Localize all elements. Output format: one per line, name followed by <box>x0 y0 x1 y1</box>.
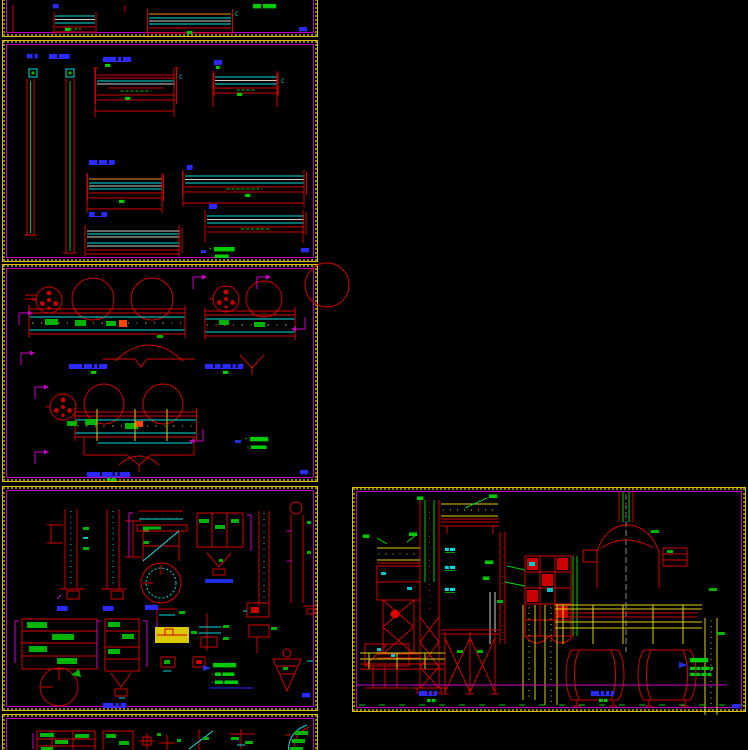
beam-mid-right <box>183 170 307 207</box>
equipment-label: ▆▆▆▆ <box>485 560 493 564</box>
tee-detail <box>229 729 255 749</box>
sheet-inner-frame: ▆▆▆▆▆ ▆▆▆ ▆ ▆▆▆ ▆▆▆ ▆▆▆ ▆▆ ▆▆▆ ▆ ▆▆ ▆▆▆ … <box>6 268 314 478</box>
equipment-label: ▆▆▆ <box>417 496 423 500</box>
detail-label: ▆▆▆▆ ▆ ▆▆ <box>103 703 126 708</box>
notes-line: ▆▆▆ ▆▆ ▆▆▆ ▆▆ <box>690 673 711 677</box>
sheet-elevation: ▆▆▆▆ ▆▆▆ ▆▆▆ ▆▆▆▆ ▆▆ ▆▆▆ ▆▆ ▆▆▆ ▆▆ ▆▆▆ ▆… <box>352 487 746 712</box>
notes-line: ▸ ▆▆▆▆▆▆▆▆ <box>247 445 266 449</box>
detail-title: ▆▆ - ▆▆ <box>89 212 107 217</box>
sheet-top-strip: ▆▆ ▆▆▆ ▆▆▆ C ▆▆▆ ▆▆▆▆▆ ▆▆▆ <box>2 0 318 37</box>
sheet2-drawing <box>7 45 317 261</box>
notes-line: ▸ ▆▆▆▆▆▆▆ <box>211 254 228 258</box>
notes-line: ▆▆▆▆▆▆▆▆▆ <box>213 663 236 668</box>
left-structure <box>377 536 420 658</box>
frame-detail-1 <box>33 731 95 750</box>
plan-bottom <box>46 384 197 472</box>
notes-line: ▸ ▆▆▆ ▆▆▆▆▆▆ <box>211 672 234 676</box>
note-lead-mark <box>201 250 206 253</box>
cross-details <box>139 733 181 750</box>
level-mark: ▆▆ ▆▆▆ <box>445 588 455 593</box>
plan-title: ▆▆▆ ▆▆ ▆▆▆ ▆ ▆▆ <box>205 364 243 369</box>
column-details <box>24 69 77 253</box>
vertical-details <box>259 502 311 606</box>
curved-profile-detail <box>285 725 309 750</box>
sheet-misc-details: ▆▆▆▆ ▆▆▆▆ ▆▆▆▆▆ ▆▆▆▆ ▆ ▆▆ ▆▆▆▆▆▆▆▆▆ ▸ ▆▆… <box>2 486 318 711</box>
section-arrows-top <box>19 275 305 366</box>
view-scale: ▆▆ ▆▆ <box>599 699 607 703</box>
plan-scale: ▆▆▆ <box>223 371 228 375</box>
sheet-number: ▆▆▆ <box>732 704 740 709</box>
detail-scale: ▆▆▆ <box>105 64 110 68</box>
beam-bottom-right <box>205 210 306 243</box>
dim-text: ▆▆▆ <box>187 31 192 35</box>
detail-title: ▆▆▆ ▆▆▆-▆▆ <box>89 160 114 165</box>
notes-line: ▸ ▆▆▆▆▆▆▆▆ <box>209 247 234 252</box>
detail-title: ▆▆▆▆▆ ▆ ▆▆▆ <box>103 57 131 62</box>
section-mark-c: C <box>281 79 284 85</box>
detail-label: ▆▆▆▆ <box>103 606 113 611</box>
sheet-inner-frame: ▆▆▆ ▆▆▆ ▆▆▆ <box>6 718 314 750</box>
equipment-label: ▆▆▆ <box>483 576 489 580</box>
platform-frame-bottom-left <box>15 619 97 706</box>
notes-text: ▆▆▆ ▆▆▆▆▆ <box>253 4 276 9</box>
notes-line: ▸ ▆▆▆▆▆▆▆ <box>245 437 268 442</box>
plan-top-right <box>205 263 349 375</box>
plan-scale: ▆▆▆ <box>91 371 96 375</box>
sheet4-drawing <box>7 491 317 710</box>
section-arrows-bottom <box>35 385 203 465</box>
plan-title: ▆▆▆▆▆ ▆▆▆ ▆ ▆▆▆ <box>69 364 107 369</box>
brace-detail <box>189 729 215 750</box>
sheet-number: ▆▆▆ <box>299 27 307 32</box>
sheet-tank-plans: ▆▆▆▆▆ ▆▆▆ ▆ ▆▆▆ ▆▆▆ ▆▆▆ ▆▆ ▆▆▆ ▆ ▆▆ ▆▆▆ … <box>2 264 318 482</box>
detail-title: ▆▆▆ <box>209 204 217 209</box>
notes-line: ▆▆▆▆▆▆▆ <box>690 658 708 663</box>
note-lead-mark <box>235 440 241 443</box>
sheet-inner-frame: ▆▆▆▆ ▆▆▆▆ ▆▆▆▆▆ ▆▆▆▆ ▆ ▆▆ ▆▆▆▆▆▆▆▆▆ ▸ ▆▆… <box>6 490 314 707</box>
ground-lines <box>357 588 743 705</box>
notes-line: ▆▆▆ ▆▆ ▆▆▆▆▆ ▆ <box>690 667 713 671</box>
sheet-inner-frame: ▆▆ ▆▆▆ ▆▆▆ C ▆▆▆ ▆▆▆▆▆ ▆▆▆ <box>6 0 314 33</box>
detail-label: ▆▆ <box>53 4 58 9</box>
plan-scale: ▆▆ ▆▆ <box>107 478 115 482</box>
part-label: ▆▆▆ ▆▆▆▆ <box>49 54 69 59</box>
mid-columns <box>490 532 505 644</box>
view-title: ▆▆▆ ▆ ▆ <box>419 691 437 696</box>
dim-text: ▆▆▆ <box>237 93 242 97</box>
detail-scale: ▆▆ <box>216 66 219 70</box>
long-deck-platforms <box>360 605 702 669</box>
sheet-number: ▆▆▆ <box>300 470 308 475</box>
part-label: ▆▆ ▆ <box>27 54 37 59</box>
sheet5-drawing <box>357 492 745 711</box>
beam-top-left <box>93 68 179 117</box>
sheet-number: ▆▆▆ <box>301 248 309 253</box>
detail-label: ▆▆▆▆▆ <box>145 605 158 610</box>
cage-ladders <box>523 605 717 715</box>
sheet6-drawing <box>7 719 317 750</box>
dim-text: ▆▆▆ <box>119 200 124 204</box>
dome-vessel <box>583 492 687 588</box>
sheet3-drawing <box>7 269 317 481</box>
dim-text: ▆▆▆ <box>125 97 130 101</box>
cad-viewport[interactable]: ▆▆ ▆▆▆ ▆▆▆ C ▆▆▆ ▆▆▆▆▆ ▆▆▆ <box>0 0 748 750</box>
top-platform <box>441 498 499 534</box>
hopper-detail <box>97 619 147 698</box>
level-mark: ▆▆ ▆▆▆ <box>445 566 455 571</box>
beam-mid-left <box>87 173 163 213</box>
ladder-detail-1 <box>47 509 89 599</box>
beam-bottom-left <box>85 225 182 257</box>
dim-text: ▆▆▆ <box>65 28 70 32</box>
equipment-label: ▆▆▆ <box>363 534 369 538</box>
sheet-inner-frame: ▆▆▆▆ ▆▆▆ ▆▆▆ ▆▆▆▆ ▆▆ ▆▆▆ ▆▆ ▆▆▆ ▆▆ ▆▆▆ ▆… <box>356 491 742 708</box>
sheet-beam-details: ▆▆ ▆ ▆▆▆ ▆▆▆▆ ▆▆▆▆▆ ▆ ▆▆▆ ▆▆▆ ▆▆▆ ▆▆ ▆▆▆… <box>2 40 318 262</box>
plan-top-left <box>25 278 195 367</box>
frame-detail-2 <box>103 731 133 750</box>
notes-line: ▸ ▆▆▆▆ ▆▆▆▆▆▆▆ <box>211 680 238 684</box>
detail-label: ▆▆▆▆ <box>57 606 67 611</box>
section-mark-c: C <box>179 75 182 81</box>
horizontal-vessels <box>566 650 696 706</box>
ladder-detail-2 <box>101 509 149 599</box>
platform-detail-2 <box>197 513 251 583</box>
sheet-bottom-strip: ▆▆▆ ▆▆▆ ▆▆▆ <box>2 714 318 750</box>
detail-title: ▆▆ <box>187 165 192 170</box>
beam-top-right <box>213 71 278 107</box>
view-title: ▆▆▆ ▆ ▆ ▆ <box>591 691 614 696</box>
equipment-label: ▆▆▆▆ <box>409 532 417 536</box>
red-marker-dot <box>391 610 400 619</box>
sheet-inner-frame: ▆▆ ▆ ▆▆▆ ▆▆▆▆ ▆▆▆▆▆ ▆ ▆▆▆ ▆▆▆ ▆▆▆ ▆▆ ▆▆▆… <box>6 44 314 258</box>
equipment-label: ▆▆▆▆ <box>489 494 497 498</box>
notes-marks <box>203 665 253 688</box>
cone-assembly-right <box>243 603 317 691</box>
center-block-structure <box>505 556 577 643</box>
section-mark-c: C <box>235 12 238 18</box>
level-mark: ▆▆ ▆▆▆ <box>445 548 455 553</box>
beam-detail-a <box>54 12 96 35</box>
sheet-number: ▆▆▆ <box>302 693 310 698</box>
view-scale: ▆▆ ▆▆ <box>427 699 435 703</box>
dim-text: ▆▆▆ <box>245 194 250 198</box>
